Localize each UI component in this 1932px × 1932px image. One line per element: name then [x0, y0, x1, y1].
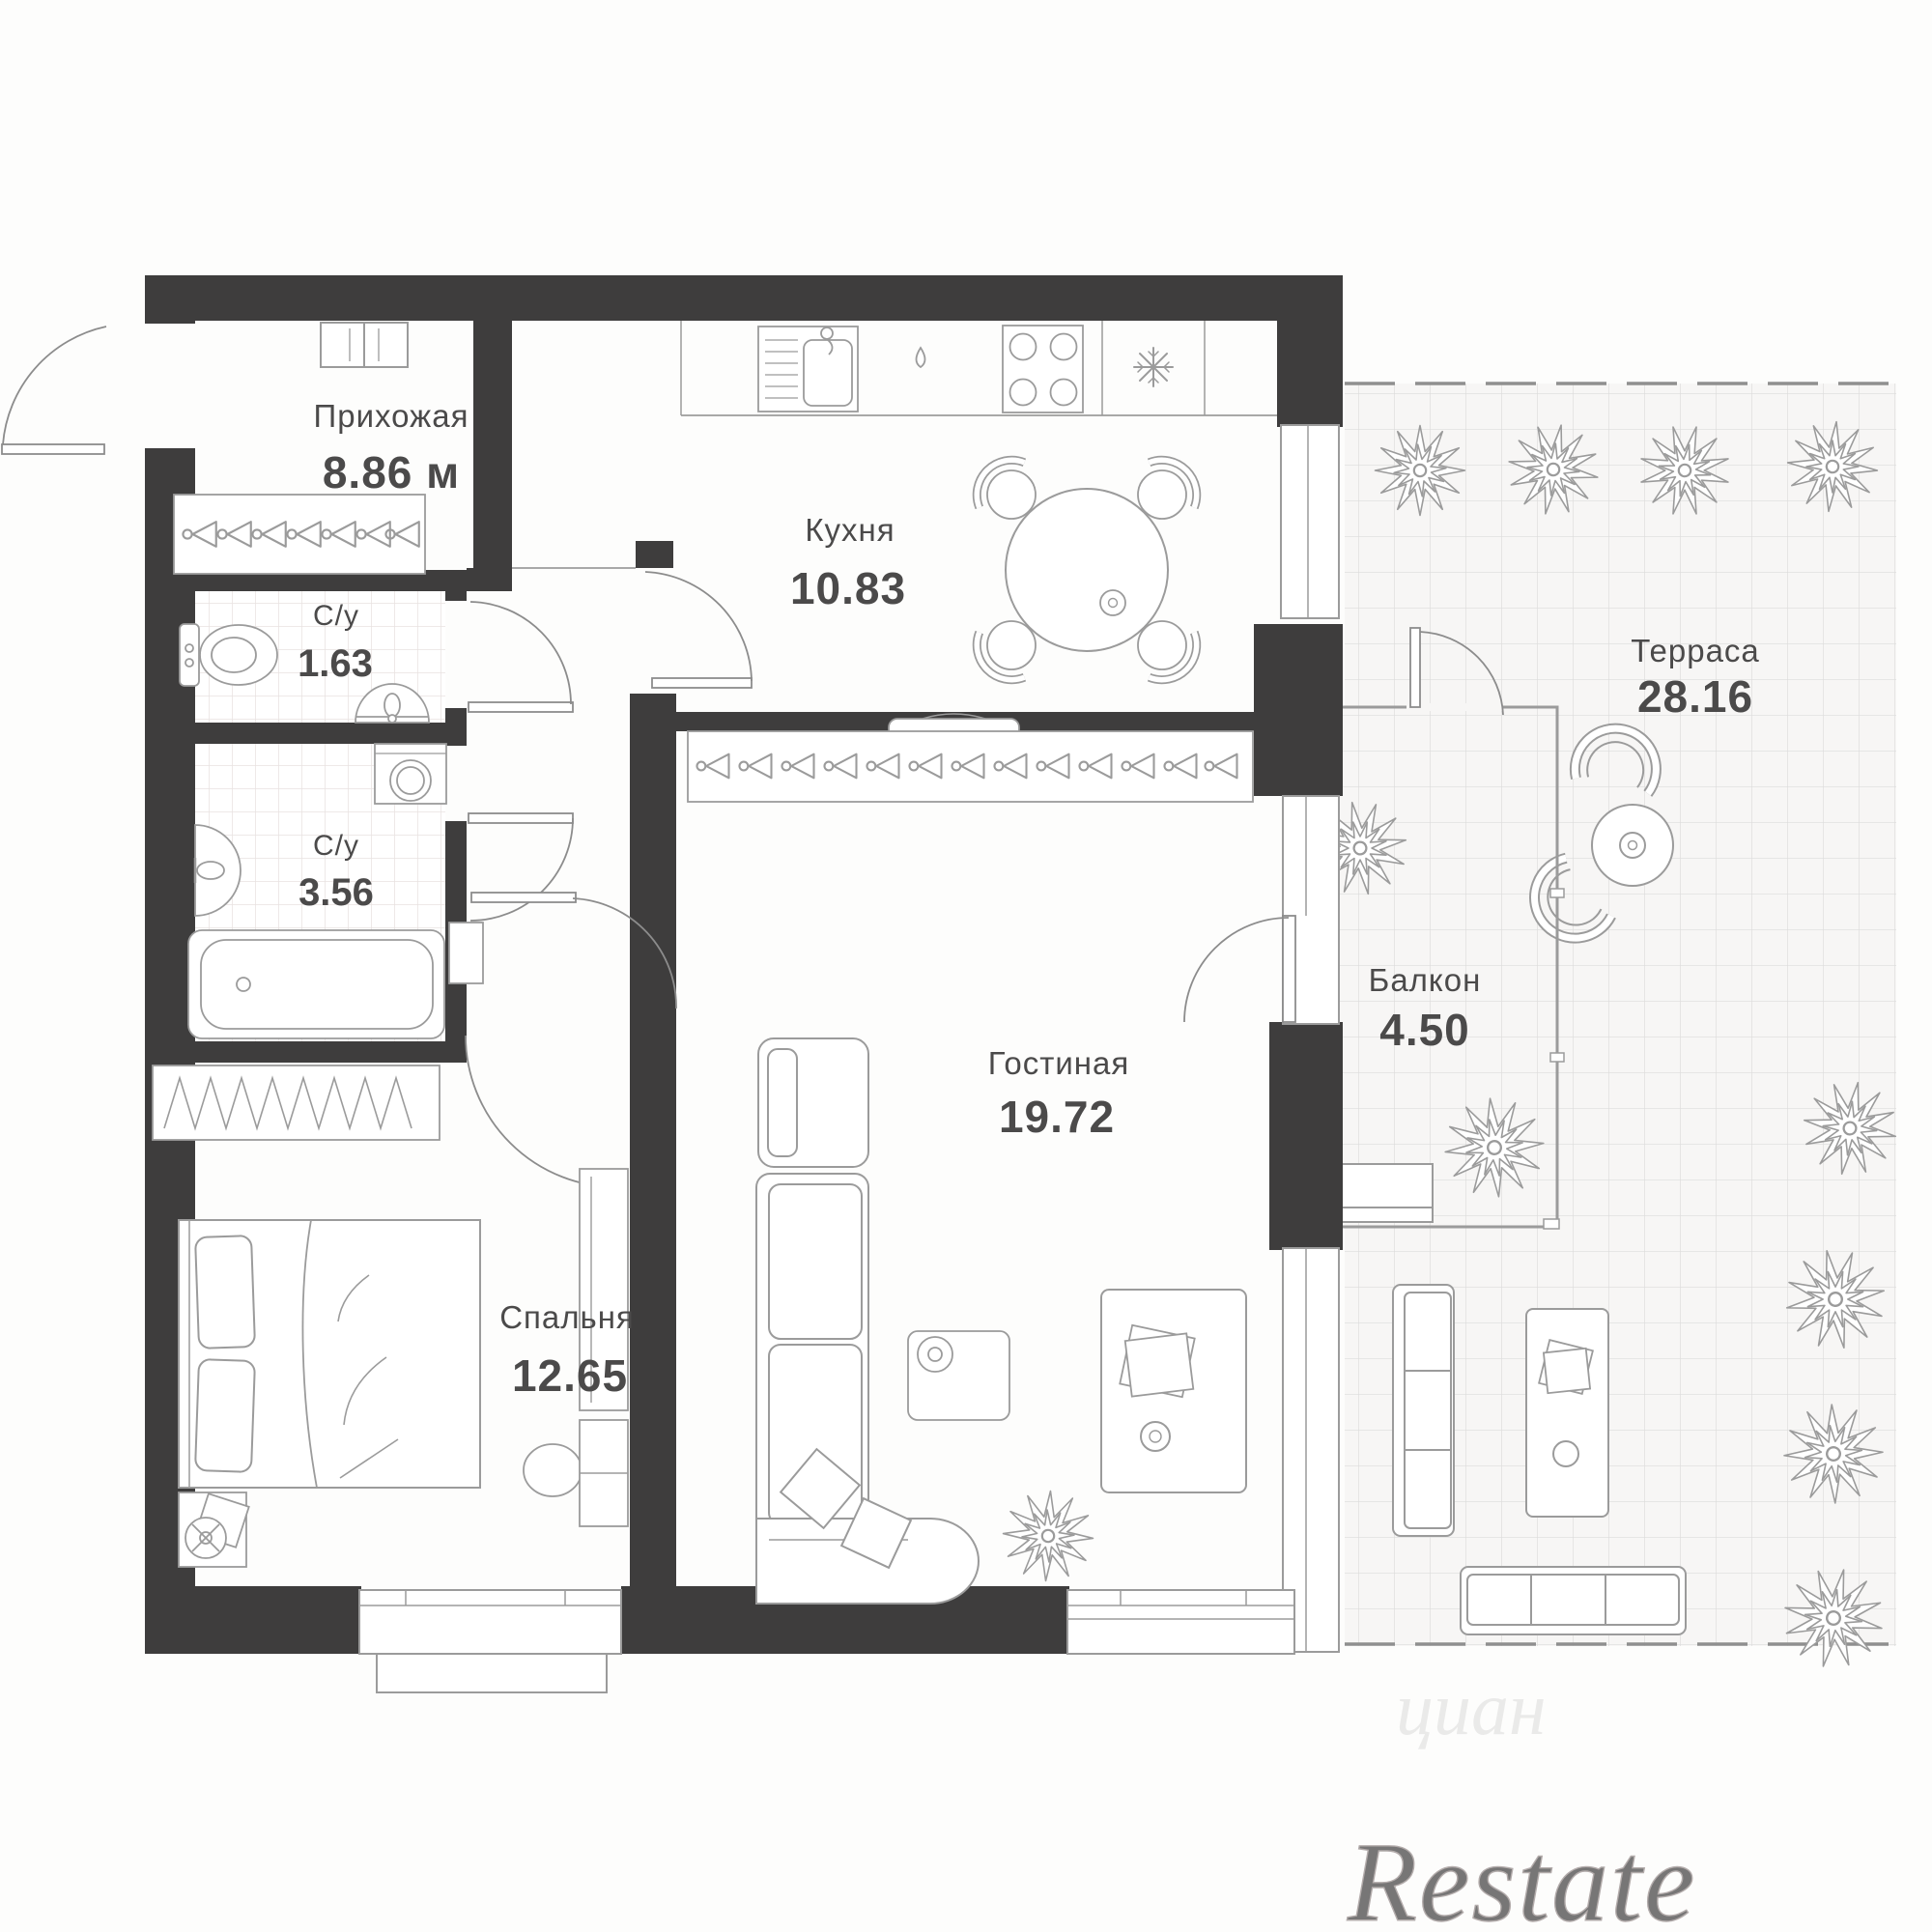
kitchen-sink-icon: [758, 327, 858, 412]
bed: [179, 1220, 480, 1488]
bedroom-wardrobe: [153, 1065, 440, 1140]
wall: [473, 321, 512, 570]
hall-wardrobe: [174, 495, 425, 574]
pillow: [195, 1359, 255, 1472]
hall-cabinet: [321, 323, 408, 367]
side-table-lamp: [908, 1331, 1009, 1420]
wall: [145, 275, 195, 324]
bathroom1-door: [469, 602, 573, 712]
room-label-terrace: Терраса: [1631, 633, 1760, 668]
room-area-hallway: 8.86 м: [323, 447, 460, 497]
bathroom2-door: [469, 813, 573, 921]
balcony-terrace-door-leaf: [1410, 628, 1420, 707]
stove-icon: [1003, 326, 1083, 412]
nightstand: [179, 1492, 249, 1567]
dining-table-icon: [964, 447, 1208, 692]
toilet-icon: [180, 624, 277, 686]
restate-watermark: Restate: [1347, 1819, 1696, 1932]
wall: [150, 1041, 467, 1063]
living-room-window: [1067, 1590, 1294, 1654]
kitchen-window: [1281, 425, 1339, 618]
wall: [636, 541, 673, 568]
pillow: [195, 1236, 255, 1349]
terrace-sofa-horizontal: [1461, 1567, 1686, 1634]
floor-plan-page: Терраса 28.16 Балкон 4.50: [0, 0, 1932, 1932]
wall: [145, 275, 1343, 321]
bedroom: Спальня 12.65: [153, 1065, 635, 1567]
washing-machine-icon: [375, 744, 446, 804]
floor-plan-drawing: Терраса 28.16 Балкон 4.50: [0, 0, 1932, 1932]
entrance-door: [2, 327, 106, 454]
room-area-living: 19.72: [999, 1092, 1115, 1142]
bedroom-window: [359, 1590, 621, 1692]
balcony-bench: [1338, 1164, 1433, 1222]
wall: [1269, 1022, 1343, 1250]
plant-icon: [986, 1474, 1111, 1599]
room-label-wc2: С/у: [313, 830, 359, 862]
room-area-terrace: 28.16: [1637, 671, 1753, 722]
living-room: Гостиная 19.72: [688, 731, 1253, 1604]
faint-watermark: циан: [1396, 1666, 1547, 1750]
fridge-snowflake-icon: [1134, 348, 1173, 386]
room-label-bedroom: Спальня: [499, 1299, 635, 1335]
room-label-living: Гостиная: [988, 1045, 1130, 1081]
kitchen: Кухня 10.83: [681, 321, 1277, 738]
living-wardrobe: [688, 731, 1253, 802]
desk-chair-icon: [524, 1444, 582, 1496]
room-area-kitchen: 10.83: [790, 563, 906, 613]
water-drop-icon: [917, 348, 925, 367]
room-label-balcony: Балкон: [1369, 962, 1482, 998]
room-label-wc1: С/у: [313, 600, 359, 632]
balcony-door-leaf: [1283, 916, 1295, 1022]
room-label-hallway: Прихожая: [314, 398, 469, 434]
corridor-cabinet: [449, 923, 483, 983]
room-area-balcony: 4.50: [1379, 1005, 1470, 1055]
wall: [445, 570, 467, 601]
wall: [467, 568, 512, 591]
wall: [1254, 624, 1343, 796]
bedroom-window-sill: [377, 1654, 607, 1692]
terrace-table: [1526, 1309, 1608, 1517]
kitchen-door: [512, 568, 752, 688]
room-area-bedroom: 12.65: [512, 1350, 628, 1401]
terrace-sofa-vertical: [1393, 1285, 1454, 1536]
wall: [145, 1586, 361, 1654]
room-area-wc2: 3.56: [298, 871, 374, 914]
wall: [1277, 321, 1343, 427]
room-label-kitchen: Кухня: [805, 512, 895, 548]
bathtub-icon: [188, 930, 444, 1038]
wall: [150, 723, 445, 744]
coffee-table: [1101, 1290, 1246, 1492]
living-balcony-window: [1184, 796, 1339, 1024]
armchair: [758, 1038, 868, 1167]
dresser: [580, 1420, 628, 1526]
hallway: Прихожая 8.86 м: [174, 323, 469, 574]
terrace-round-table-icon: [1592, 805, 1673, 886]
balcony-door-arc: [1184, 918, 1289, 1022]
wall: [630, 694, 676, 1589]
wall: [445, 708, 467, 746]
room-area-wc1: 1.63: [298, 642, 373, 685]
